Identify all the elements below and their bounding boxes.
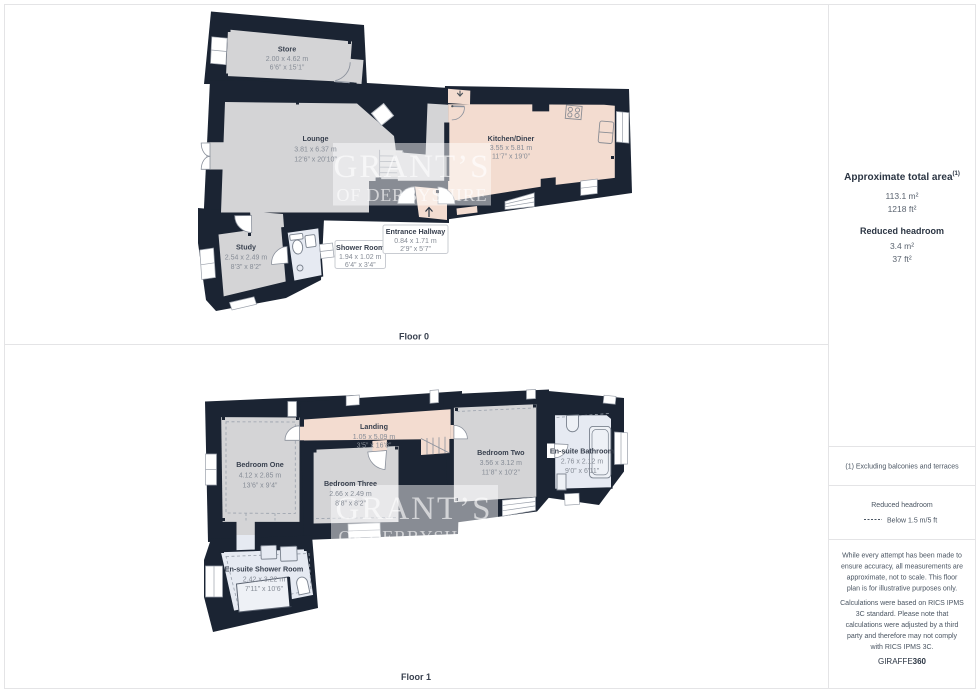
svg-text:(1) Excluding balconies and te: (1) Excluding balconies and terraces (845, 464, 959, 471)
svg-text:Landing: Landing (360, 422, 388, 431)
svg-text:Shower Room: Shower Room (336, 243, 384, 252)
svg-text:Below 1.5 m/5 ft: Below 1.5 m/5 ft (887, 518, 937, 525)
svg-text:En-suite Shower Room: En-suite Shower Room (225, 565, 304, 574)
svg-text:Calculations were based on RIC: Calculations were based on RICS IPMS (840, 600, 964, 607)
svg-text:2.66 x 2.49 m: 2.66 x 2.49 m (329, 491, 372, 498)
svg-text:8’3” x 8’2”: 8’3” x 8’2” (231, 264, 262, 271)
svg-text:approximate, not to scale. Thi: approximate, not to scale. This floor (847, 575, 958, 582)
svg-text:Floor 1: Floor 1 (401, 672, 431, 682)
svg-text:3.81 x 6.37 m: 3.81 x 6.37 m (294, 147, 337, 154)
svg-text:3’5” x 16’8”: 3’5” x 16’8” (357, 443, 392, 450)
svg-text:Approximate total area(1): Approximate total area(1) (844, 171, 960, 183)
svg-text:1218 ft²: 1218 ft² (888, 204, 917, 214)
svg-text:Bedroom Three: Bedroom Three (324, 479, 377, 488)
svg-text:37 ft²: 37 ft² (892, 254, 912, 264)
svg-text:6’4” x 3’4”: 6’4” x 3’4” (345, 262, 376, 269)
svg-text:Kitchen/Diner: Kitchen/Diner (488, 134, 535, 143)
svg-text:Lounge: Lounge (303, 134, 329, 143)
svg-text:While every attempt has been m: While every attempt has been made to (842, 553, 962, 560)
svg-text:En-suite Bathroom: En-suite Bathroom (550, 447, 614, 456)
svg-text:with RICS IPMS 3C.: with RICS IPMS 3C. (869, 644, 933, 651)
svg-text:plan is for illustrative purpo: plan is for illustrative purposes only. (847, 586, 957, 593)
svg-text:Store: Store (278, 45, 296, 54)
svg-text:2’9” x 5’7”: 2’9” x 5’7” (400, 246, 431, 253)
svg-text:8’8” x 8’2”: 8’8” x 8’2” (335, 501, 366, 508)
svg-text:9’0” x 6’11”: 9’0” x 6’11” (565, 468, 600, 475)
svg-text:party and therefore may not co: party and therefore may not comply (847, 633, 958, 640)
svg-text:7’11” x 10’6”: 7’11” x 10’6” (245, 586, 284, 593)
svg-text:11’7” x 19’0”: 11’7” x 19’0” (492, 154, 531, 161)
svg-text:2.76 x 2.12 m: 2.76 x 2.12 m (561, 459, 604, 466)
svg-text:2.54 x 2.49 m: 2.54 x 2.49 m (225, 255, 268, 262)
svg-text:3.4 m²: 3.4 m² (890, 241, 914, 251)
svg-text:0.84 x 1.71 m: 0.84 x 1.71 m (394, 238, 437, 245)
svg-text:3.55 x 5.81 m: 3.55 x 5.81 m (490, 145, 533, 152)
svg-text:Reduced headroom: Reduced headroom (860, 226, 944, 236)
svg-text:OF DERBYSHIRE: OF DERBYSHIRE (337, 185, 488, 205)
svg-text:12’6” x 20’10”: 12’6” x 20’10” (294, 157, 337, 164)
svg-text:113.1 m²: 113.1 m² (886, 191, 919, 201)
svg-text:11’8” x 10’2”: 11’8” x 10’2” (482, 470, 521, 477)
svg-text:Bedroom Two: Bedroom Two (477, 448, 525, 457)
svg-text:Floor 0: Floor 0 (399, 332, 429, 342)
svg-text:6’6” x 15’1”: 6’6” x 15’1” (270, 65, 305, 72)
svg-text:1.94 x 1.02 m: 1.94 x 1.02 m (339, 254, 382, 261)
svg-text:Entrance Hallway: Entrance Hallway (386, 227, 446, 236)
svg-text:ensure accuracy, all measureme: ensure accuracy, all measurements are (841, 564, 963, 571)
svg-text:Study: Study (236, 243, 256, 252)
svg-text:2.42 x 3.22 m: 2.42 x 3.22 m (243, 577, 286, 584)
svg-text:GRANT’S: GRANT’S (333, 149, 490, 185)
svg-text:Reduced headroom: Reduced headroom (871, 502, 933, 509)
svg-text:GIRAFFE360: GIRAFFE360 (878, 657, 927, 666)
svg-text:calculations were adjusted by: calculations were adjusted by a third (846, 622, 959, 629)
svg-text:2.00 x 4.62 m: 2.00 x 4.62 m (266, 56, 309, 63)
svg-text:3C standard. Please note that: 3C standard. Please note that (856, 611, 949, 618)
svg-text:1.05 x 5.09 m: 1.05 x 5.09 m (353, 434, 396, 441)
svg-text:Bedroom One: Bedroom One (236, 460, 284, 469)
svg-text:13’6” x 9’4”: 13’6” x 9’4” (243, 483, 278, 490)
svg-text:3.56 x 3.12 m: 3.56 x 3.12 m (480, 460, 523, 467)
svg-text:OF DERBYSHIRE: OF DERBYSHIRE (339, 527, 490, 547)
svg-text:4.12 x 2.85 m: 4.12 x 2.85 m (239, 473, 282, 480)
